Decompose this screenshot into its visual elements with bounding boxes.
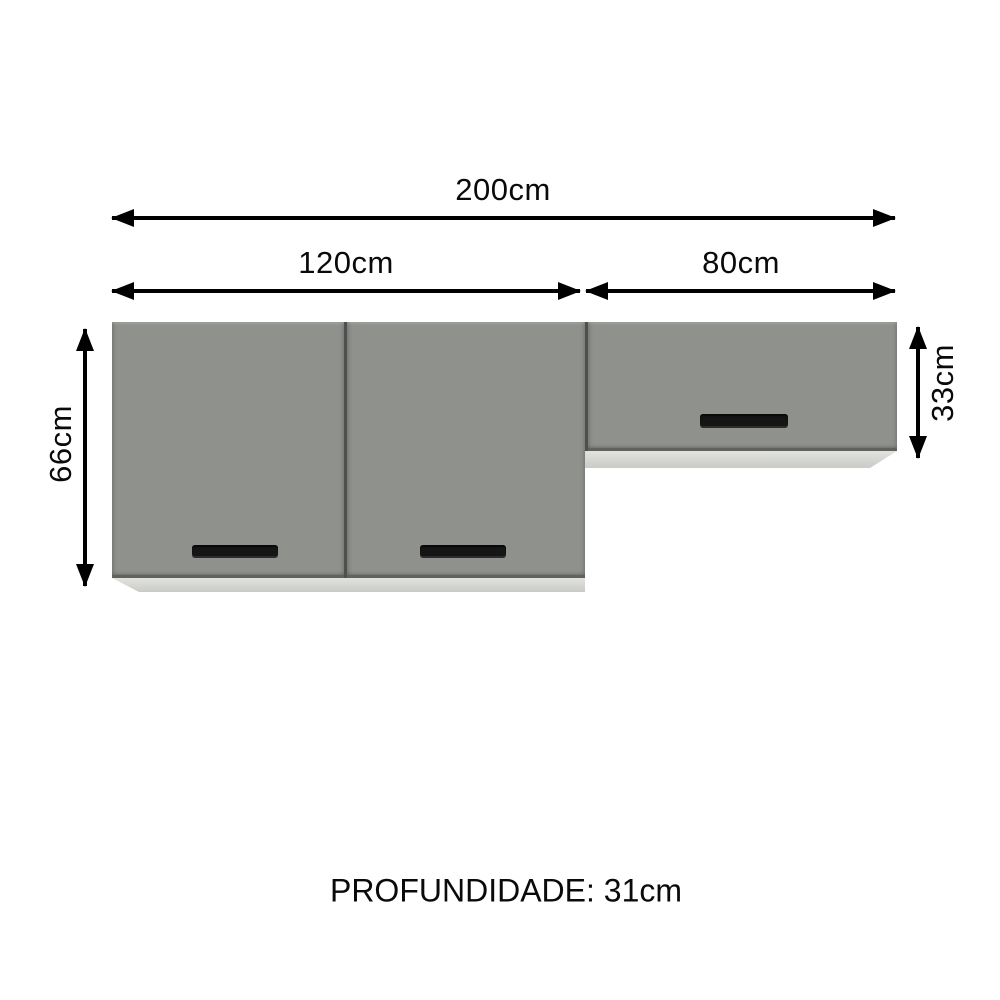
right-cabinet-bottom-panel bbox=[585, 451, 897, 468]
left-cabinet-height-dimension-arrow bbox=[83, 329, 87, 586]
total-width-label: 200cm bbox=[455, 172, 551, 208]
depth-label: PROFUNDIDADE: 31cm bbox=[330, 873, 682, 910]
door-handle bbox=[192, 545, 278, 558]
total-width-dimension-arrow bbox=[112, 216, 895, 220]
right-cabinet-doors-area bbox=[585, 322, 897, 451]
door-handle bbox=[420, 545, 506, 558]
door-handle bbox=[700, 414, 788, 428]
left-cabinet-door-2 bbox=[347, 322, 585, 578]
right-cabinet-width-dimension-arrow bbox=[586, 289, 895, 293]
left-cabinet-door-1 bbox=[112, 322, 344, 578]
right-cabinet-width-label: 80cm bbox=[702, 245, 780, 281]
left-wall-cabinet bbox=[112, 322, 585, 592]
left-cabinet-width-dimension-arrow bbox=[112, 289, 580, 293]
left-cabinet-width-label: 120cm bbox=[298, 245, 394, 281]
left-cabinet-bottom-panel bbox=[112, 578, 585, 592]
left-cabinet-doors-area bbox=[112, 322, 585, 578]
right-wall-cabinet bbox=[585, 322, 897, 468]
product-dimension-diagram: 200cm 120cm 80cm 66cm 33cm PROFUNDID bbox=[0, 0, 1000, 1000]
right-cabinet-door bbox=[588, 322, 897, 451]
right-cabinet-height-label: 33cm bbox=[925, 344, 961, 422]
left-cabinet-height-label: 66cm bbox=[43, 405, 79, 483]
right-cabinet-height-dimension-arrow bbox=[916, 327, 920, 458]
